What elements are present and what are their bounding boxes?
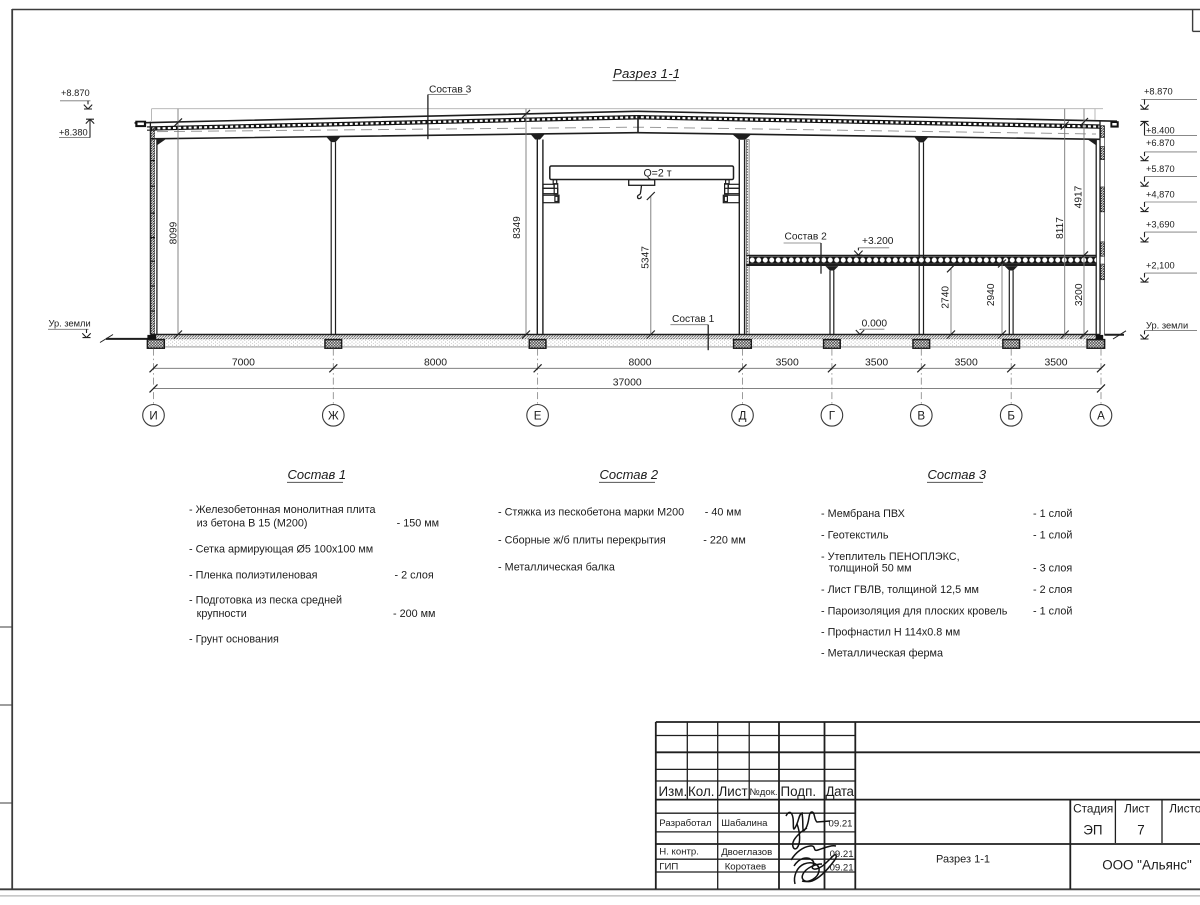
svg-text:ЭП: ЭП bbox=[1083, 823, 1102, 838]
svg-text:+5.870: +5.870 bbox=[1146, 164, 1175, 174]
svg-text:Дата: Дата bbox=[826, 784, 855, 799]
svg-text:- Стяжка из пескобетона марки: - Стяжка из пескобетона марки М200 bbox=[498, 507, 684, 519]
svg-text:Состав 3: Состав 3 bbox=[928, 467, 987, 482]
svg-text:Ур. земли: Ур. земли bbox=[49, 318, 91, 328]
svg-text:7000: 7000 bbox=[232, 358, 255, 369]
svg-text:- Сетка армирующая Ø5 100х100: - Сетка армирующая Ø5 100х100 мм bbox=[189, 544, 373, 556]
svg-text:09.21: 09.21 bbox=[830, 849, 854, 860]
svg-text:Состав 3: Состав 3 bbox=[429, 85, 472, 96]
svg-text:+2,100: +2,100 bbox=[1146, 261, 1175, 271]
svg-text:- Подготовка из песка средней: - Подготовка из песка средней bbox=[189, 595, 342, 607]
svg-text:- Железобетонная монолитная п: - Железобетонная монолитная плита bbox=[189, 504, 376, 516]
svg-text:09.21: 09.21 bbox=[830, 863, 854, 874]
svg-text:- Утеплитель ПЕНОПЛЭКС,: - Утеплитель ПЕНОПЛЭКС, bbox=[821, 551, 960, 563]
svg-text:- 1 слой: - 1 слой bbox=[1033, 530, 1072, 542]
svg-text:09.21: 09.21 bbox=[829, 819, 853, 830]
svg-text:7: 7 bbox=[1137, 823, 1144, 838]
svg-text:- Пароизоляция для плоских кро: - Пароизоляция для плоских кровель bbox=[821, 606, 1008, 618]
svg-text:А: А bbox=[1097, 410, 1105, 423]
svg-text:+4,870: +4,870 bbox=[1146, 189, 1175, 199]
svg-text:Е: Е bbox=[534, 410, 542, 423]
svg-text:- Металлическая ферма: - Металлическая ферма bbox=[821, 648, 943, 660]
svg-text:8349: 8349 bbox=[512, 216, 523, 239]
svg-text:- Мембрана ПВХ: - Мембрана ПВХ bbox=[821, 508, 905, 520]
svg-text:Q=2 т: Q=2 т bbox=[643, 167, 671, 179]
svg-text:- 3 слоя: - 3 слоя bbox=[1033, 563, 1072, 575]
svg-text:8000: 8000 bbox=[628, 358, 651, 369]
svg-text:- 1 слой: - 1 слой bbox=[1033, 508, 1072, 520]
svg-text:3500: 3500 bbox=[1044, 358, 1067, 369]
svg-text:Кол.: Кол. bbox=[688, 784, 715, 799]
svg-text:Шабалина: Шабалина bbox=[721, 818, 768, 829]
svg-text:крупности: крупности bbox=[197, 608, 247, 620]
svg-text:- Металлическая балка: - Металлическая балка bbox=[498, 562, 615, 574]
svg-text:37000: 37000 bbox=[613, 378, 642, 389]
svg-text:+8.400: +8.400 bbox=[1146, 125, 1175, 135]
svg-text:Разрез 1-1: Разрез 1-1 bbox=[936, 854, 990, 866]
svg-text:Д: Д bbox=[739, 410, 747, 423]
svg-text:- 150 мм: - 150 мм bbox=[397, 518, 439, 530]
svg-text:Состав 1: Состав 1 bbox=[672, 314, 715, 325]
svg-text:- Геотекстиль: - Геотекстиль bbox=[821, 530, 889, 542]
svg-text:3200: 3200 bbox=[1074, 283, 1085, 306]
svg-text:+8.870: +8.870 bbox=[61, 88, 90, 98]
svg-text:4917: 4917 bbox=[1074, 185, 1085, 208]
svg-text:- Пленка полиэтиленовая: - Пленка полиэтиленовая bbox=[189, 570, 318, 582]
svg-text:Состав 1: Состав 1 bbox=[288, 467, 347, 482]
svg-text:3500: 3500 bbox=[955, 358, 978, 369]
svg-text:0.000: 0.000 bbox=[862, 318, 888, 329]
svg-text:Ур. земли: Ур. земли bbox=[1146, 321, 1188, 331]
svg-text:из бетона В 15 (М200): из бетона В 15 (М200) bbox=[197, 518, 308, 530]
svg-text:В: В bbox=[917, 410, 925, 423]
svg-text:Двоеглазов: Двоеглазов bbox=[721, 847, 772, 858]
svg-text:- 1 слой: - 1 слой bbox=[1033, 606, 1072, 618]
svg-text:- 2 слоя: - 2 слоя bbox=[1033, 584, 1072, 596]
svg-text:- Лист ГВЛВ, толщиной 12,5 мм: - Лист ГВЛВ, толщиной 12,5 мм bbox=[821, 584, 979, 596]
svg-text:- Сборные ж/б плиты перекрытия: - Сборные ж/б плиты перекрытия bbox=[498, 535, 666, 547]
svg-text:Состав 2: Состав 2 bbox=[785, 231, 828, 242]
svg-text:Коротаев: Коротаев bbox=[725, 861, 766, 872]
svg-text:- 220 мм: - 220 мм bbox=[703, 535, 745, 547]
svg-text:Г: Г bbox=[829, 410, 836, 423]
svg-text:Изм.: Изм. bbox=[659, 784, 688, 799]
svg-text:толщиной 50 мм: толщиной 50 мм bbox=[829, 563, 912, 575]
svg-text:Листов: Листов bbox=[1169, 802, 1200, 816]
svg-text:8117: 8117 bbox=[1055, 217, 1066, 239]
svg-text:+8.870: +8.870 bbox=[1144, 87, 1173, 97]
svg-text:5347: 5347 bbox=[640, 246, 651, 269]
svg-text:8099: 8099 bbox=[169, 221, 180, 244]
svg-text:Состав 2: Состав 2 bbox=[600, 467, 659, 482]
svg-text:Лист: Лист bbox=[1124, 802, 1150, 816]
svg-text:№док.: №док. bbox=[750, 787, 778, 798]
svg-text:+3.200: +3.200 bbox=[862, 236, 894, 247]
svg-text:И: И bbox=[149, 410, 157, 423]
svg-text:Лист: Лист bbox=[719, 784, 748, 799]
svg-text:+3,690: +3,690 bbox=[1146, 220, 1175, 230]
svg-text:Б: Б bbox=[1007, 410, 1015, 423]
svg-text:ООО "Альянс": ООО "Альянс" bbox=[1102, 858, 1192, 873]
svg-text:Разрез 1-1: Разрез 1-1 bbox=[613, 66, 680, 81]
svg-text:2740: 2740 bbox=[941, 286, 952, 309]
svg-text:2940: 2940 bbox=[986, 283, 997, 306]
svg-text:Подп.: Подп. bbox=[781, 784, 817, 799]
svg-text:- 2 слоя: - 2 слоя bbox=[395, 570, 434, 582]
svg-text:8000: 8000 bbox=[424, 358, 447, 369]
svg-text:Н. контр.: Н. контр. bbox=[659, 847, 699, 858]
svg-text:Ж: Ж bbox=[328, 410, 339, 423]
svg-text:Стадия: Стадия bbox=[1073, 802, 1113, 816]
svg-text:+8.380: +8.380 bbox=[59, 127, 88, 137]
svg-text:3500: 3500 bbox=[865, 358, 888, 369]
svg-text:+6.870: +6.870 bbox=[1146, 138, 1175, 148]
svg-text:- Профнастил Н 114х0.8 мм: - Профнастил Н 114х0.8 мм bbox=[821, 627, 960, 639]
svg-text:- 200 мм: - 200 мм bbox=[393, 608, 435, 620]
svg-text:- 40 мм: - 40 мм bbox=[705, 507, 741, 519]
svg-text:- Грунт основания: - Грунт основания bbox=[189, 634, 279, 646]
svg-text:3500: 3500 bbox=[776, 358, 799, 369]
svg-text:ГИП: ГИП bbox=[659, 861, 678, 872]
svg-text:Разработал: Разработал bbox=[659, 818, 711, 829]
